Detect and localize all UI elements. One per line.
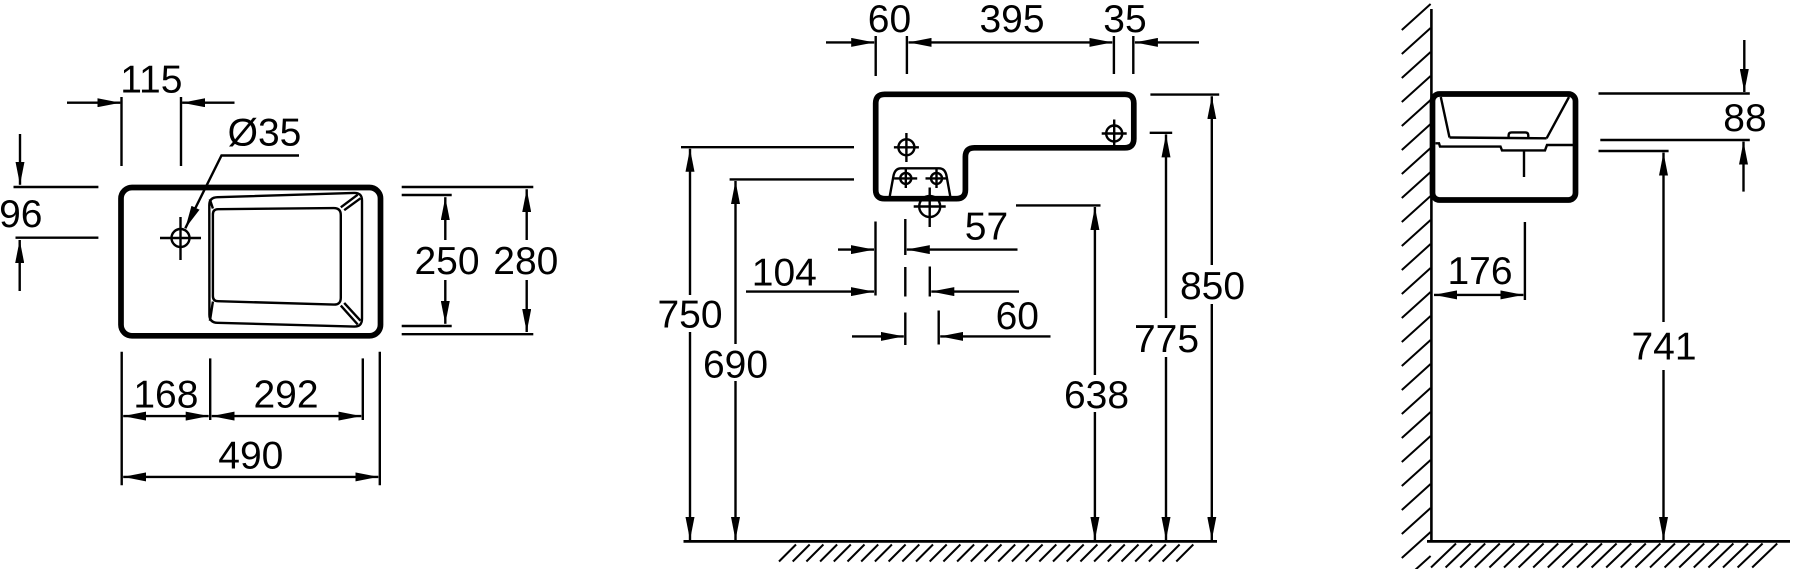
svg-text:96: 96: [0, 193, 42, 236]
svg-text:168: 168: [133, 374, 198, 417]
svg-text:750: 750: [657, 294, 722, 337]
svg-text:280: 280: [493, 240, 558, 283]
svg-text:57: 57: [965, 206, 1008, 249]
svg-text:775: 775: [1134, 318, 1199, 361]
svg-text:250: 250: [414, 240, 479, 283]
svg-text:60: 60: [996, 295, 1039, 338]
svg-text:292: 292: [253, 374, 318, 417]
svg-text:395: 395: [979, 0, 1044, 41]
svg-text:60: 60: [868, 0, 911, 41]
svg-text:35: 35: [1103, 0, 1146, 41]
svg-text:638: 638: [1064, 374, 1129, 417]
svg-text:741: 741: [1631, 326, 1696, 369]
svg-text:Ø35: Ø35: [228, 112, 302, 155]
svg-text:176: 176: [1447, 250, 1512, 293]
svg-text:850: 850: [1180, 265, 1245, 308]
svg-text:115: 115: [120, 59, 182, 102]
svg-text:490: 490: [218, 435, 283, 478]
svg-text:88: 88: [1723, 97, 1766, 140]
svg-text:104: 104: [752, 252, 817, 295]
svg-text:690: 690: [703, 343, 768, 386]
